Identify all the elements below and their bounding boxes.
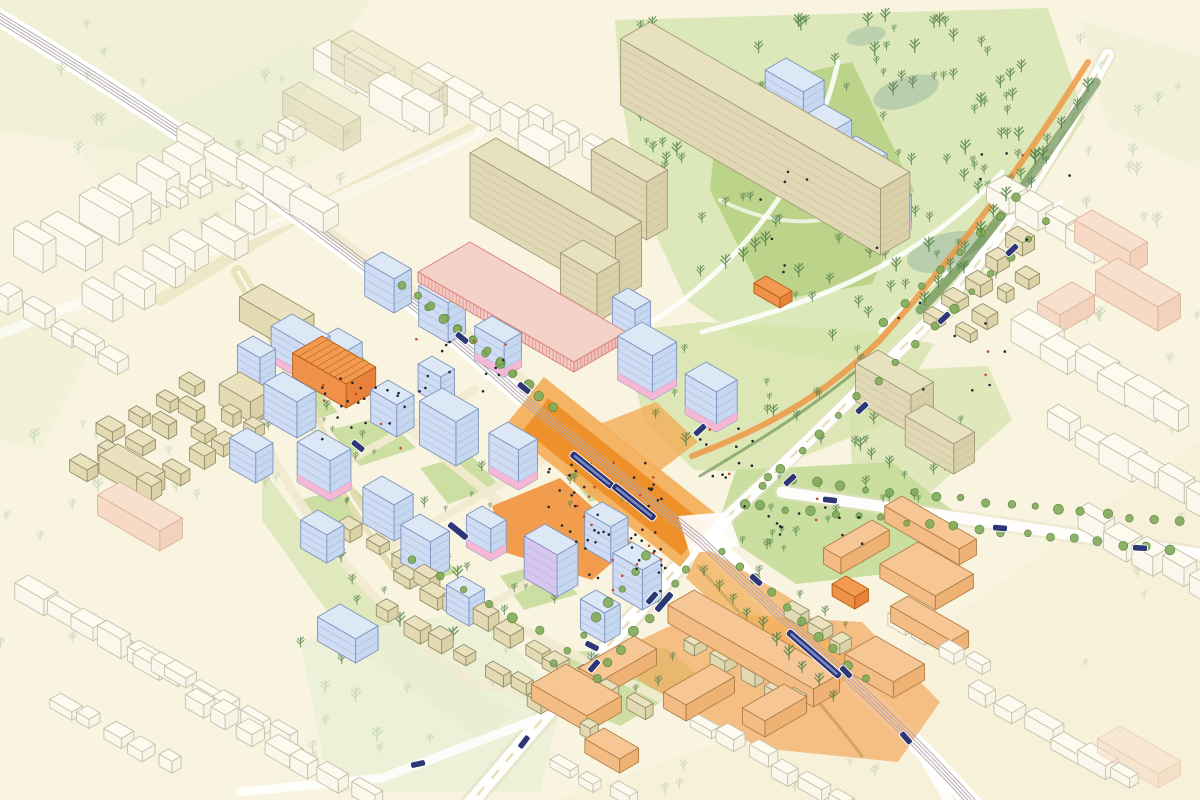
- person-dot: [653, 550, 656, 553]
- person-dot: [612, 589, 615, 592]
- street-tree-icon: [925, 520, 934, 529]
- person-dot: [587, 539, 590, 542]
- masterplan-canvas: [0, 0, 1200, 800]
- street-tree-icon: [1119, 541, 1128, 550]
- person-dot: [651, 487, 654, 490]
- person-dot: [858, 516, 861, 519]
- street-tree-icon: [949, 521, 958, 530]
- person-dot: [448, 341, 451, 344]
- person-dot: [953, 335, 956, 338]
- person-dot: [547, 471, 550, 474]
- person-dot: [988, 384, 991, 387]
- person-dot: [735, 445, 738, 448]
- person-dot: [771, 238, 774, 241]
- person-dot: [323, 399, 326, 402]
- person-dot: [728, 473, 731, 476]
- street-tree-icon: [776, 464, 785, 473]
- street-tree-icon: [1047, 533, 1055, 541]
- street-tree-icon: [835, 412, 841, 418]
- street-tree-icon: [1032, 503, 1038, 509]
- person-dot: [355, 393, 358, 396]
- street-tree-icon: [484, 347, 491, 354]
- street-tree-icon: [534, 391, 544, 401]
- street-tree-icon: [581, 632, 587, 638]
- street-tree-icon: [863, 487, 869, 493]
- person-dot: [636, 563, 639, 566]
- person-dot: [445, 344, 448, 347]
- person-dot: [633, 476, 636, 479]
- person-dot: [779, 533, 782, 536]
- person-dot: [593, 486, 596, 489]
- person-dot: [415, 338, 418, 341]
- person-dot: [743, 505, 746, 508]
- person-dot: [660, 498, 663, 501]
- street-tree-icon: [593, 674, 601, 682]
- person-dot: [630, 537, 633, 540]
- car: [992, 524, 1008, 532]
- street-tree-icon: [835, 481, 845, 491]
- person-dot: [984, 374, 987, 377]
- street-tree-icon: [901, 299, 909, 307]
- street-tree-icon: [997, 213, 1005, 221]
- person-dot: [575, 470, 578, 473]
- person-dot: [374, 386, 377, 389]
- person-dot: [798, 512, 801, 515]
- person-dot: [780, 526, 783, 529]
- street-tree-icon: [408, 556, 416, 564]
- street-tree-icon: [878, 514, 884, 520]
- person-dot: [424, 387, 427, 390]
- person-dot: [979, 178, 982, 181]
- street-tree-icon: [904, 520, 910, 526]
- person-dot: [418, 390, 421, 393]
- masterplan-illustration: [0, 0, 1200, 800]
- car: [1132, 544, 1147, 551]
- person-dot: [397, 392, 400, 395]
- street-tree-icon: [616, 645, 625, 654]
- person-dot: [482, 390, 485, 393]
- person-dot: [660, 558, 663, 561]
- person-dot: [647, 505, 650, 508]
- person-dot: [590, 524, 593, 527]
- person-dot: [635, 568, 638, 571]
- street-tree-icon: [782, 507, 789, 514]
- street-tree-icon: [1012, 193, 1021, 202]
- street-tree-icon: [931, 322, 939, 330]
- person-dot: [494, 367, 497, 370]
- person-dot: [1005, 152, 1008, 155]
- street-tree-icon: [911, 340, 919, 348]
- street-tree-icon: [486, 600, 493, 607]
- person-dot: [987, 350, 990, 353]
- street-tree-icon: [957, 249, 964, 256]
- street-tree-icon: [937, 266, 945, 274]
- person-dot: [824, 506, 827, 509]
- person-dot: [588, 573, 591, 576]
- person-dot: [861, 542, 864, 545]
- street-tree-icon: [427, 302, 435, 310]
- person-dot: [357, 401, 360, 404]
- person-dot: [876, 247, 879, 250]
- street-tree-icon: [1070, 534, 1078, 542]
- person-dot: [751, 464, 754, 467]
- street-tree-icon: [549, 403, 558, 412]
- person-dot: [658, 571, 661, 574]
- street-tree-icon: [1103, 509, 1112, 518]
- person-dot: [321, 386, 324, 389]
- street-tree-icon: [603, 598, 613, 608]
- street-tree-icon: [806, 506, 816, 516]
- street-tree-icon: [436, 572, 444, 580]
- street-tree-icon: [982, 499, 990, 507]
- person-dot: [608, 533, 611, 536]
- person-dot: [621, 575, 624, 578]
- person-dot: [767, 515, 770, 518]
- street-tree-icon: [460, 586, 467, 593]
- street-tree-icon: [813, 477, 822, 486]
- person-dot: [664, 567, 667, 570]
- person-dot: [838, 517, 841, 520]
- person-dot: [631, 546, 634, 549]
- person-dot: [640, 539, 643, 542]
- person-dot: [346, 400, 349, 403]
- person-dot: [657, 499, 660, 502]
- person-dot: [360, 387, 363, 390]
- street-tree-icon: [879, 318, 888, 327]
- street-tree-icon: [1093, 537, 1102, 546]
- person-dot: [380, 423, 383, 426]
- person-dot: [1004, 350, 1007, 353]
- person-dot: [386, 389, 389, 392]
- person-dot: [597, 531, 600, 534]
- street-tree-icon: [719, 548, 725, 554]
- street-tree-icon: [736, 563, 744, 571]
- street-tree-icon: [1008, 501, 1016, 509]
- street-tree-icon: [1025, 530, 1032, 537]
- person-dot: [611, 559, 614, 562]
- street-tree-icon: [853, 392, 861, 400]
- street-tree-icon: [536, 626, 544, 634]
- street-tree-icon: [414, 292, 421, 299]
- street-tree-icon: [646, 614, 655, 623]
- street-tree-icon: [768, 588, 776, 596]
- street-tree-icon: [1053, 504, 1063, 514]
- person-dot: [441, 350, 444, 353]
- person-dot: [984, 322, 987, 325]
- person-dot: [784, 181, 787, 184]
- person-dot: [709, 428, 712, 431]
- street-tree-icon: [957, 494, 964, 501]
- person-dot: [816, 498, 819, 501]
- person-dot: [759, 198, 762, 201]
- person-dot: [787, 171, 790, 174]
- street-tree-icon: [969, 289, 975, 295]
- street-tree-icon: [507, 613, 517, 623]
- street-tree-icon: [832, 511, 839, 518]
- person-dot: [388, 422, 391, 425]
- person-dot: [652, 476, 655, 479]
- person-dot: [396, 395, 399, 398]
- street-tree-icon: [682, 566, 689, 573]
- street-tree-icon: [439, 315, 448, 324]
- street-tree-icon: [759, 482, 766, 489]
- person-dot: [612, 461, 615, 464]
- street-tree-icon: [496, 358, 504, 366]
- person-dot: [724, 476, 727, 479]
- person-dot: [639, 494, 642, 497]
- car: [822, 496, 838, 504]
- person-dot: [558, 489, 561, 492]
- person-dot: [575, 540, 578, 543]
- person-dot: [659, 548, 662, 551]
- person-dot: [336, 416, 339, 419]
- person-dot: [971, 389, 974, 392]
- person-dot: [897, 317, 900, 320]
- street-tree-icon: [987, 271, 993, 277]
- street-tree-icon: [550, 660, 557, 667]
- street-tree-icon: [875, 377, 883, 385]
- street-tree-icon: [783, 604, 791, 612]
- person-dot: [403, 406, 406, 409]
- person-dot: [737, 427, 740, 430]
- street-tree-icon: [975, 525, 984, 534]
- person-dot: [324, 392, 327, 395]
- person-dot: [588, 495, 591, 498]
- person-dot: [841, 534, 844, 537]
- person-dot: [721, 473, 724, 476]
- person-dot: [699, 438, 702, 441]
- person-dot: [602, 531, 605, 534]
- street-tree-icon: [1042, 218, 1049, 225]
- street-tree-icon: [1165, 545, 1175, 555]
- person-dot: [570, 494, 573, 497]
- person-dot: [322, 384, 325, 387]
- person-dot: [648, 545, 651, 548]
- person-dot: [712, 475, 715, 478]
- street-tree-icon: [641, 551, 650, 560]
- person-dot: [644, 462, 647, 465]
- street-tree-icon: [672, 580, 679, 587]
- person-dot: [363, 397, 366, 400]
- person-dot: [919, 302, 922, 305]
- person-dot: [638, 559, 641, 562]
- person-dot: [705, 443, 708, 446]
- street-tree-icon: [755, 501, 764, 510]
- person-dot: [473, 340, 476, 343]
- person-dot: [574, 505, 577, 508]
- person-dot: [1021, 154, 1024, 157]
- person-dot: [570, 464, 573, 467]
- person-dot: [584, 547, 587, 550]
- person-dot: [593, 529, 596, 532]
- person-dot: [783, 264, 786, 267]
- street-tree-icon: [603, 658, 612, 667]
- person-dot: [504, 343, 507, 346]
- street-tree-icon: [918, 283, 925, 290]
- person-dot: [815, 519, 818, 522]
- person-dot: [321, 438, 324, 441]
- person-dot: [548, 468, 551, 471]
- person-dot: [568, 474, 571, 477]
- person-dot: [502, 359, 505, 362]
- person-dot: [981, 153, 984, 156]
- street-tree-icon: [564, 647, 571, 654]
- person-dot: [782, 271, 785, 274]
- person-dot: [776, 522, 779, 525]
- person-dot: [1025, 238, 1028, 241]
- person-dot: [806, 178, 809, 181]
- person-dot: [594, 541, 597, 544]
- street-tree-icon: [619, 586, 625, 592]
- street-tree-icon: [950, 304, 959, 313]
- person-dot: [339, 377, 342, 380]
- person-dot: [561, 524, 564, 527]
- street-tree-icon: [932, 492, 941, 501]
- person-dot: [573, 491, 576, 494]
- person-dot: [596, 514, 599, 517]
- street-tree-icon: [764, 473, 772, 481]
- person-dot: [634, 533, 637, 536]
- street-tree-icon: [628, 626, 638, 636]
- street-tree-icon: [814, 632, 823, 641]
- person-dot: [648, 487, 651, 490]
- person-dot: [654, 531, 657, 534]
- street-tree-icon: [398, 281, 406, 289]
- street-tree-icon: [862, 675, 869, 682]
- street-tree-icon: [829, 644, 838, 653]
- person-dot: [399, 447, 402, 450]
- person-dot: [751, 440, 754, 443]
- person-dot: [340, 405, 343, 408]
- street-tree-icon: [911, 489, 918, 496]
- person-dot: [597, 577, 600, 580]
- person-dot: [427, 375, 430, 378]
- person-dot: [485, 373, 488, 376]
- street-tree-icon: [799, 447, 806, 454]
- person-dot: [350, 426, 353, 429]
- person-dot: [351, 382, 354, 385]
- person-dot: [583, 486, 586, 489]
- street-tree-icon: [1126, 515, 1134, 523]
- person-dot: [659, 590, 662, 593]
- street-tree-icon: [1150, 515, 1159, 524]
- person-dot: [364, 422, 367, 425]
- person-dot: [922, 388, 925, 391]
- person-dot: [1068, 174, 1071, 177]
- person-dot: [547, 506, 550, 509]
- street-tree-icon: [591, 612, 601, 622]
- street-tree-icon: [886, 489, 894, 497]
- street-tree-icon: [740, 500, 750, 510]
- street-tree-icon: [815, 430, 824, 439]
- street-tree-icon: [798, 617, 807, 626]
- person-dot: [660, 564, 663, 567]
- street-tree-icon: [892, 359, 899, 366]
- person-dot: [652, 483, 655, 486]
- person-dot: [738, 462, 741, 465]
- person-dot: [641, 528, 644, 531]
- person-dot: [569, 530, 572, 533]
- street-tree-icon: [508, 370, 516, 378]
- person-dot: [583, 515, 586, 518]
- person-dot: [448, 371, 451, 374]
- street-tree-icon: [1076, 507, 1084, 515]
- street-tree-icon: [1175, 517, 1184, 526]
- person-dot: [498, 374, 501, 377]
